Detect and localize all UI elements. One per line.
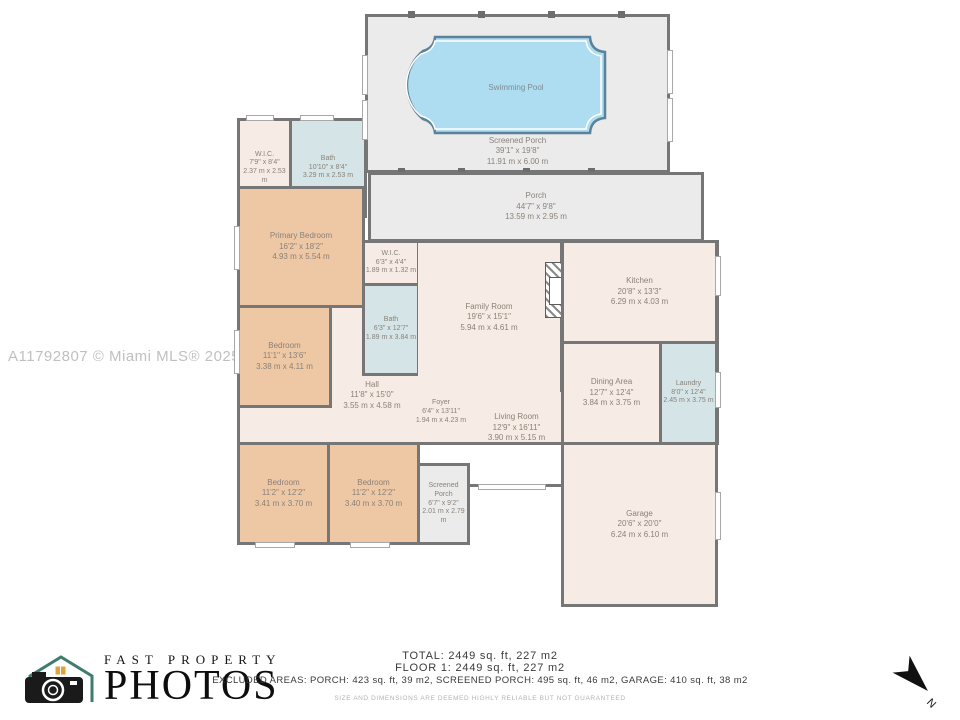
room-dims-ft: 6'3" x 4'4" [366,259,416,268]
window [715,256,721,296]
window [300,115,334,121]
room-primary-bedroom: Primary Bedroom 16'2" x 18'2" 4.93 m x 5… [237,186,365,308]
room-dims-m: 3.84 m x 3.75 m [583,398,640,408]
window [715,492,721,540]
room-wic-hall: W.I.C. 6'3" x 4'4" 1.89 m x 1.32 m [362,240,420,286]
room-label: Kitchen [611,276,668,286]
room-label: Bath [303,155,353,164]
room-dims-m: 6.29 m x 4.03 m [611,297,668,307]
room-dims-m: 4.93 m x 5.54 m [270,252,332,262]
total-area-text: TOTAL: 2449 sq. ft, 227 m2 [130,650,830,662]
room-bedroom-mid: Bedroom 11'1" x 13'6" 3.38 m x 4.11 m [237,305,332,408]
room-dims-ft: 12'9" x 16'11" [488,423,545,433]
room-label: Screened Porch [420,482,467,500]
room-dims-m: 2.01 m x 2.79 m [420,508,467,526]
room-label: Bath [366,316,416,325]
window [362,55,368,95]
room-bedroom-b1: Bedroom 11'2" x 12'2" 3.41 m x 3.70 m [237,442,330,545]
excluded-areas-text: EXCLUDED AREAS: PORCH: 423 sq. ft, 39 m2… [130,675,830,686]
room-dims-m: 13.59 m x 2.95 m [505,212,567,222]
room-dims-m: 6.24 m x 6.10 m [611,530,668,540]
porch-post [408,11,415,18]
room-label: Bedroom [256,341,313,351]
area-summary: TOTAL: 2449 sq. ft, 227 m2 FLOOR 1: 2449… [130,650,830,702]
room-dims-ft: 11'2" x 12'2" [255,488,312,498]
window [234,330,240,374]
room-label: Living Room [488,412,545,422]
room-dims-m: 3.40 m x 3.70 m [345,499,402,509]
room-dims-ft: 39'1" x 19'8" [487,146,548,156]
room-dims-ft: 8'0" x 12'4" [663,389,713,398]
swimming-pool: Swimming Pool [405,32,627,138]
window [350,542,390,548]
room-label: Bedroom [255,478,312,488]
room-dims-ft: 20'6" x 20'0" [611,519,668,529]
room-dims-ft: 11'2" x 12'2" [345,488,402,498]
pool-label: Swimming Pool [405,83,627,92]
room-dims-ft: 16'2" x 18'2" [270,242,332,252]
room-dims-m: 1.94 m x 4.23 m [405,416,477,425]
room-garage: Garage 20'6" x 20'0" 6.24 m x 6.10 m [561,442,718,607]
room-dims-ft: 11'1" x 13'6" [256,351,313,361]
mls-watermark: A11792807 © Miami MLS® 2025 [8,348,240,365]
room-living-room: Living Room 12'9" x 16'11" 3.90 m x 5.15… [470,392,563,487]
room-laundry: Laundry 8'0" x 12'4" 2.45 m x 3.75 m [659,341,718,445]
room-bedroom-b2: Bedroom 11'2" x 12'2" 3.40 m x 3.70 m [327,442,420,545]
room-label: Laundry [663,380,713,389]
room-label: Hall [322,380,422,390]
porch-post [548,11,555,18]
room-bath-hall: Bath 6'3" x 12'7" 1.89 m x 3.84 m [362,283,420,376]
window [478,484,546,490]
room-dims-ft: 10'10" x 8'4" [303,164,353,173]
room-label: W.I.C. [366,250,416,259]
room-label: Family Room [460,302,517,312]
room-screened-porch-rear: Screened Porch 6'7" x 9'2" 2.01 m x 2.79… [417,463,470,545]
floorplan-page: A11792807 © Miami MLS® 2025 Screened Por… [0,0,960,720]
room-kitchen: Kitchen 20'8" x 13'3" 6.29 m x 4.03 m [561,240,718,344]
north-label: N [924,696,938,710]
room-foyer: Foyer 6'4" x 13'11" 1.94 m x 4.23 m [405,398,477,425]
room-porch: Porch 44'7" x 9'8" 13.59 m x 2.95 m [368,172,704,242]
room-dims-ft: 7'9" x 8'4" [240,159,289,168]
room-dims-m: 5.94 m x 4.61 m [460,323,517,333]
room-dims-m: 1.89 m x 1.32 m [366,267,416,276]
room-dims-ft: 6'4" x 13'11" [405,407,477,416]
room-label: Foyer [405,398,477,407]
room-label: Dining Area [583,377,640,387]
room-dims-ft: 6'3" x 12'7" [366,325,416,334]
room-label: Garage [611,509,668,519]
north-arrow: N [885,648,940,715]
disclaimer-text: SIZE AND DIMENSIONS ARE DEEMED HIGHLY RE… [130,695,830,702]
window [715,372,721,408]
room-dims-m: 2.45 m x 3.75 m [663,397,713,406]
window [234,226,240,270]
room-dims-ft: 12'7" x 12'4" [583,388,640,398]
room-dims-ft: 44'7" x 9'8" [505,202,567,212]
room-dims-m: 3.90 m x 5.15 m [488,433,545,443]
window [246,115,274,121]
room-dims-ft: 19'6" x 15'1" [460,312,517,322]
room-dining-area: Dining Area 12'7" x 12'4" 3.84 m x 3.75 … [561,341,662,445]
room-label: Primary Bedroom [270,231,332,241]
floor1-area-text: FLOOR 1: 2449 sq. ft, 227 m2 [130,662,830,674]
room-label: Bedroom [345,478,402,488]
room-dims-m: 3.41 m x 3.70 m [255,499,312,509]
window [362,100,368,140]
room-dims-m: 2.37 m x 2.53 m [240,168,289,186]
porch-post [478,11,485,18]
room-dims-ft: 20'8" x 13'3" [611,287,668,297]
porch-post [618,11,625,18]
window [255,542,295,548]
room-family-room: Family Room 19'6" x 15'1" 5.94 m x 4.61 … [418,240,563,392]
room-label: W.I.C. [240,151,289,160]
room-dims-m: 3.38 m x 4.11 m [256,362,313,372]
room-dims-m: 3.29 m x 2.53 m [303,172,353,181]
room-label: Porch [505,191,567,201]
logo-house-camera-icon [22,650,100,706]
room-dims-m: 1.89 m x 3.84 m [366,334,416,343]
room-dims-m: 11.91 m x 6.00 m [487,157,548,167]
window [667,98,673,142]
room-dims-ft: 6'7" x 9'2" [420,500,467,509]
window [667,50,673,94]
